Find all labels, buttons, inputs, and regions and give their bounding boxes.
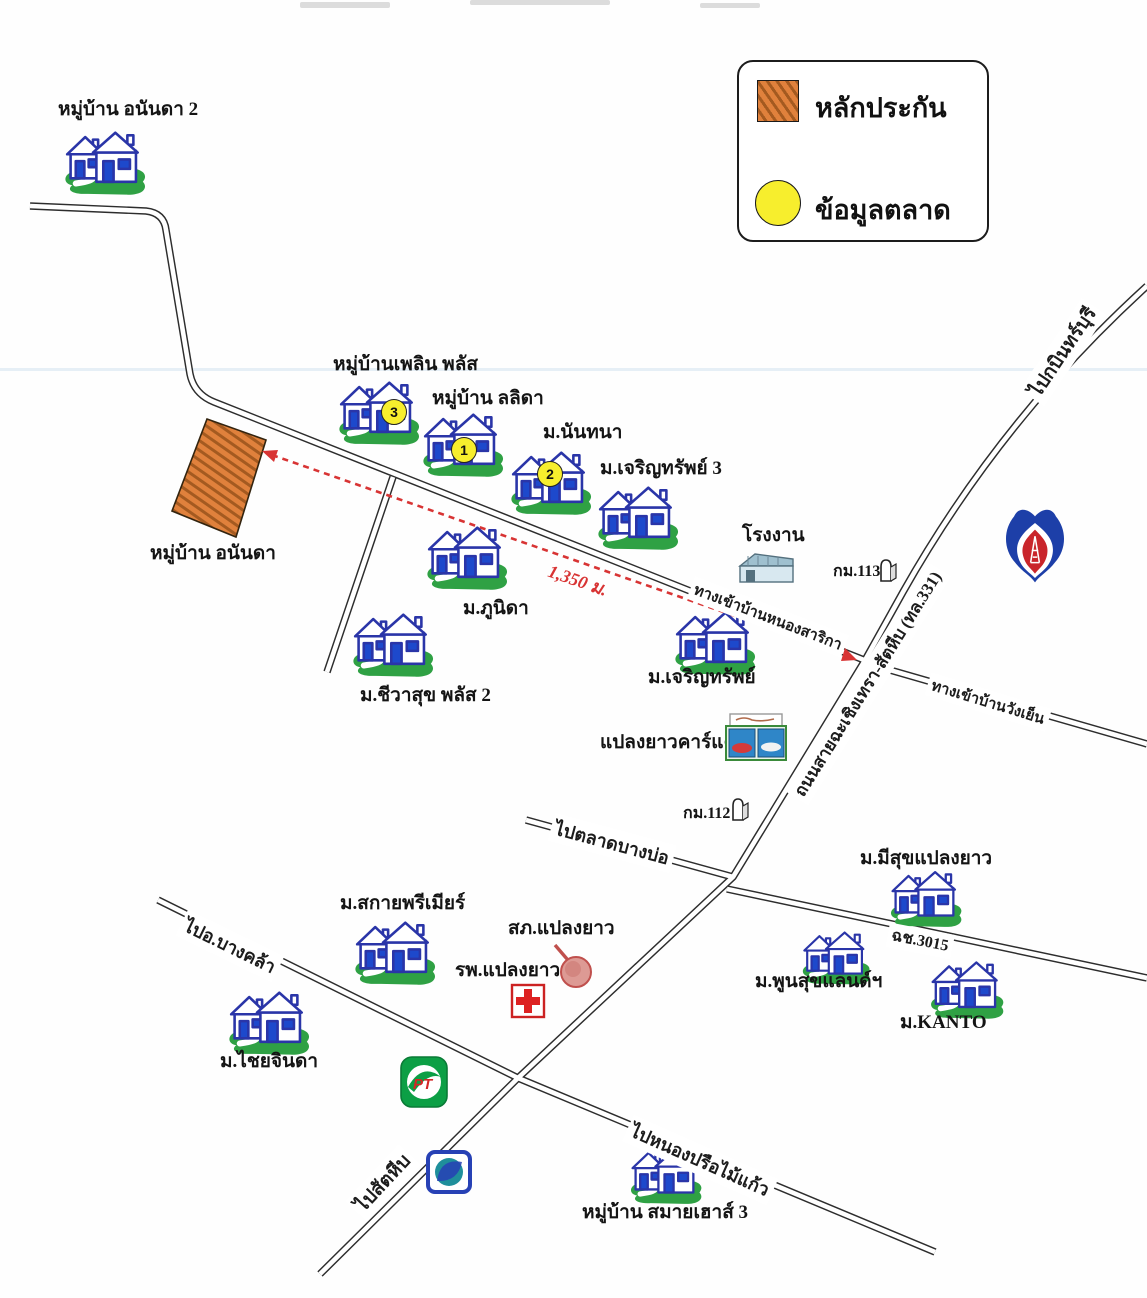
village-label-kanto: ม.KANTO: [900, 1013, 987, 1034]
hospital-icon: [510, 983, 546, 1019]
village-houses-icon-charoensap-3: [595, 483, 681, 551]
village-houses-icon-chaiyachinda: [226, 988, 312, 1056]
village-label-lalida: หมู่บ้าน ลลิดา: [432, 389, 544, 410]
pt-logo-text: PT: [413, 1076, 434, 1093]
market-data-badge-1: 1: [451, 437, 477, 463]
village-label-ananda-2: หมู่บ้าน อนันดา 2: [58, 100, 198, 121]
village-houses-icon-meesuk: [888, 868, 964, 928]
village-houses-icon-kanto: [928, 958, 1006, 1020]
village-label-smile-house-3: หมู่บ้าน สมายเฮาส์ 3: [582, 1203, 748, 1224]
km-113-label: กม.113: [833, 563, 880, 581]
ptt-logo-icon: [1002, 505, 1068, 585]
village-label-poonsuk-land: ม.พูนสุขแลนด์ฯ: [755, 972, 882, 993]
km-112-milestone-icon: [730, 797, 750, 823]
pt-station-logo-icon: PT: [400, 1056, 448, 1108]
km-112-label: กม.112: [683, 805, 730, 823]
legend-box: หลักประกัน ข้อมูลตลาด: [737, 60, 989, 242]
factory-icon: [738, 550, 796, 586]
village-label-meesuk: ม.มีสุขแปลงยาว: [860, 849, 992, 870]
village-houses-icon-ploen-plus: [336, 378, 422, 446]
legend-market-label: ข้อมูลตลาด: [815, 188, 951, 231]
village-houses-icon-ananda-2: [62, 128, 148, 196]
village-houses-icon-phunida: [424, 523, 510, 591]
police-station-label: สภ.แปลงยาว: [508, 919, 615, 940]
collateral-plot-label: หมู่บ้าน อนันดา: [150, 544, 276, 565]
collateral-plot: [172, 419, 266, 537]
market-data-badge-3: 3: [381, 399, 407, 425]
hospital-label: รพ.แปลงยาว: [455, 961, 560, 982]
legend-collateral-swatch: [757, 80, 799, 122]
factory-label: โรงงาน: [742, 526, 805, 547]
legend-collateral-label: หลักประกัน: [815, 86, 947, 129]
village-label-phunida: ม.ภูนิดา: [463, 599, 529, 620]
map-canvas: หลักประกัน ข้อมูลตลาด 3 1 2 หมู่บ้าน อนั…: [0, 0, 1147, 1298]
car-care-sign-icon: [722, 712, 788, 764]
village-label-nanthana: ม.นันทนา: [543, 423, 622, 444]
village-label-ploen-plus: หมู่บ้านเพลิน พลัส: [333, 355, 478, 376]
village-label-chaiyachinda: ม.ไชยจินดา: [220, 1052, 318, 1073]
village-houses-icon-sky-premier: [352, 918, 438, 986]
village-label-cheevasuk-plus-2: ม.ชีวาสุข พลัส 2: [360, 686, 491, 707]
village-label-charoensap: ม.เจริญทรัพย์: [648, 668, 756, 689]
village-label-sky-premier: ม.สกายพรีเมียร์: [340, 894, 465, 915]
legend-market-swatch: [755, 180, 801, 226]
market-data-badge-2: 2: [537, 461, 563, 487]
village-label-charoensap-3: ม.เจริญทรัพย์ 3: [600, 459, 722, 480]
km-113-milestone-icon: [878, 558, 898, 584]
village-houses-icon-cheevasuk-plus-2: [350, 610, 436, 678]
blue-leaf-logo-icon: [426, 1150, 472, 1194]
